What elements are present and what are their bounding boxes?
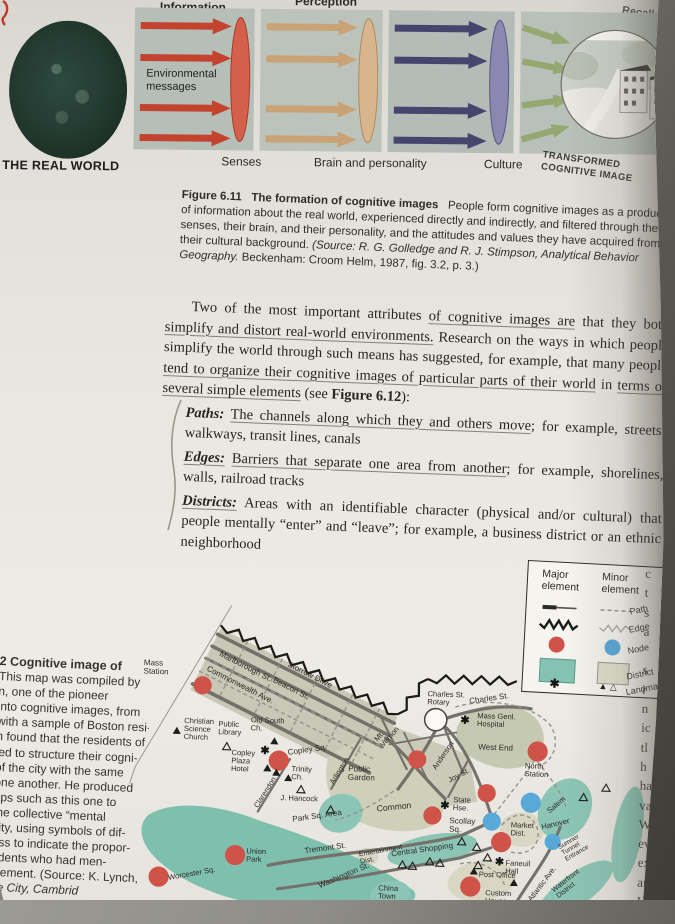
map-label-charles-st: Charles St. bbox=[469, 691, 510, 705]
major-node-swatch bbox=[548, 636, 565, 653]
real-world-label: THE REAL WORLD bbox=[2, 158, 142, 173]
body-run: in bbox=[595, 376, 617, 393]
minor-node-swatch bbox=[604, 639, 621, 656]
panel-culture bbox=[387, 10, 514, 153]
map-label-west-end: West End bbox=[478, 742, 513, 752]
districts-term: Districts: bbox=[182, 492, 237, 510]
pencil-underlined-run: of cognitive images are bbox=[428, 308, 575, 330]
state-house-star-icon: ✱ bbox=[440, 800, 450, 812]
map-label-copley-plaza: CopleyPlazaHotel bbox=[231, 748, 256, 774]
charles-rotary-node bbox=[424, 708, 447, 731]
transformed-cognitive-image-label: TRANSFORMED COGNITIVE IMAGE bbox=[540, 149, 675, 191]
map-label-trinity: TrinityCh. bbox=[291, 764, 312, 782]
body-run: ): bbox=[401, 389, 410, 405]
minor-landmark-swatch: ▲ △ bbox=[598, 681, 617, 693]
culture-label: Culture bbox=[463, 157, 543, 172]
major-path-swatch bbox=[540, 602, 580, 614]
map-label-mass-station: MassStation bbox=[143, 658, 169, 676]
legend-header-major: Major element bbox=[541, 569, 580, 594]
figure-6-11-caption: Figure 6.11 The formation of cognitive i… bbox=[179, 188, 670, 283]
body-run: that they both bbox=[575, 314, 670, 334]
map-label-clarendon: Clarendon bbox=[252, 775, 278, 809]
perception-label: Perception bbox=[295, 0, 357, 9]
edges-term: Edges: bbox=[184, 448, 226, 466]
map-label-north-station: NorthStation bbox=[525, 761, 549, 779]
map-label-post-office: Post Office bbox=[479, 870, 516, 880]
map-label-j-hancock: J. Hancock bbox=[280, 793, 318, 803]
panel-perception bbox=[259, 9, 382, 152]
map-label-public-library: PublicLibrary bbox=[218, 719, 242, 737]
body-run: (see bbox=[301, 385, 332, 402]
figure-6-11-diagram: Information Perception Recall THE REAL W… bbox=[0, 0, 675, 192]
faneuil-hall-star-icon: ✱ bbox=[495, 856, 505, 868]
map-label-christian-science: ChristianScienceChurch bbox=[184, 716, 215, 742]
figure-6-12-reference: Figure 6.12 bbox=[331, 386, 401, 405]
map-label-state-hse: StateHse. bbox=[453, 795, 471, 813]
copley-star-icon: ✱ bbox=[260, 745, 270, 757]
pencil-bracket-mark bbox=[166, 398, 186, 536]
major-landmark-swatch: ✱ bbox=[549, 676, 560, 691]
environmental-messages-label: Environmental messages bbox=[146, 68, 217, 95]
map-label-charles-rotary: Charles St.Rotary bbox=[427, 689, 465, 707]
map-label-custom-house: CustomHouse bbox=[485, 888, 512, 906]
legend-header-minor: Minor element bbox=[601, 572, 640, 597]
paths-term: Paths: bbox=[185, 404, 224, 421]
real-world-aerial-photo bbox=[8, 20, 127, 159]
minor-path-swatch bbox=[598, 605, 632, 617]
caption-fig-number: Figure 6.11 bbox=[181, 189, 242, 203]
senses-label: Senses bbox=[196, 154, 286, 169]
body-paragraph: Two of the most important attributes of … bbox=[162, 296, 670, 418]
panel-transformed-image bbox=[519, 11, 674, 155]
brain-personality-label: Brain and personality bbox=[295, 155, 445, 171]
book-page: Information Perception Recall THE REAL W… bbox=[0, 0, 675, 900]
mass-general-star-icon: ✱ bbox=[460, 715, 470, 727]
major-edge-swatch bbox=[537, 616, 582, 634]
body-text: Two of the most important attributes of … bbox=[156, 296, 670, 573]
